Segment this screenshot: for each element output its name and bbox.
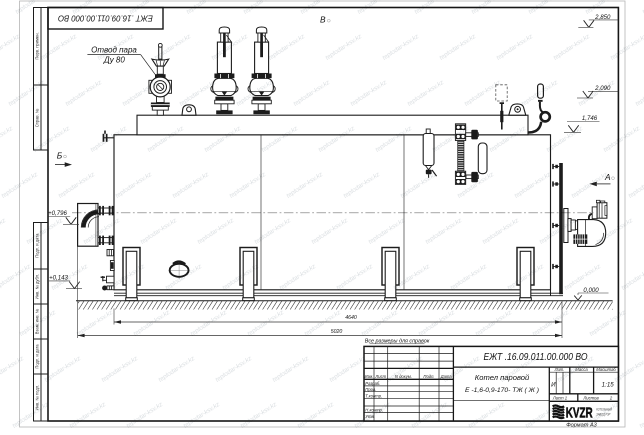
svg-text:Инв. № дубл.: Инв. № дубл. [35,274,40,299]
svg-text:5020: 5020 [331,329,343,335]
svg-text:Подп.: Подп. [423,374,434,379]
svg-text:+0,796: +0,796 [48,210,67,217]
svg-text:Е -1,6-0,9-170- ТЖ ( Ж ): Е -1,6-0,9-170- ТЖ ( Ж ) [465,387,539,394]
svg-text:Справ. №: Справ. № [35,108,40,127]
svg-text:ЕЖТ .16.09.011.00.000 ВО: ЕЖТ .16.09.011.00.000 ВО [58,13,153,22]
svg-text:Все размеры для справок: Все размеры для справок [365,338,430,344]
svg-text:Пров.: Пров. [365,387,376,392]
svg-text:Лит.: Лит. [554,367,565,372]
svg-text:Масштаб: Масштаб [596,367,616,372]
svg-text:1:15: 1:15 [602,381,615,388]
svg-text:Изм.: Изм. [365,374,374,379]
svg-text:Подп. и дата: Подп. и дата [35,344,40,369]
svg-text:Б: Б [57,151,63,161]
svg-text:Листов: Листов [582,395,599,400]
svg-text:В: В [320,15,326,25]
svg-text:Лист 1: Лист 1 [552,395,567,400]
svg-text:2,850: 2,850 [594,14,611,21]
svg-text:1,746: 1,746 [582,115,598,122]
svg-text:4640: 4640 [345,315,357,321]
svg-text:0,000: 0,000 [583,287,599,294]
svg-text:Т.контр.: Т.контр. [365,393,382,398]
svg-text:И: И [551,381,556,388]
svg-text:Разраб.: Разраб. [365,381,380,386]
